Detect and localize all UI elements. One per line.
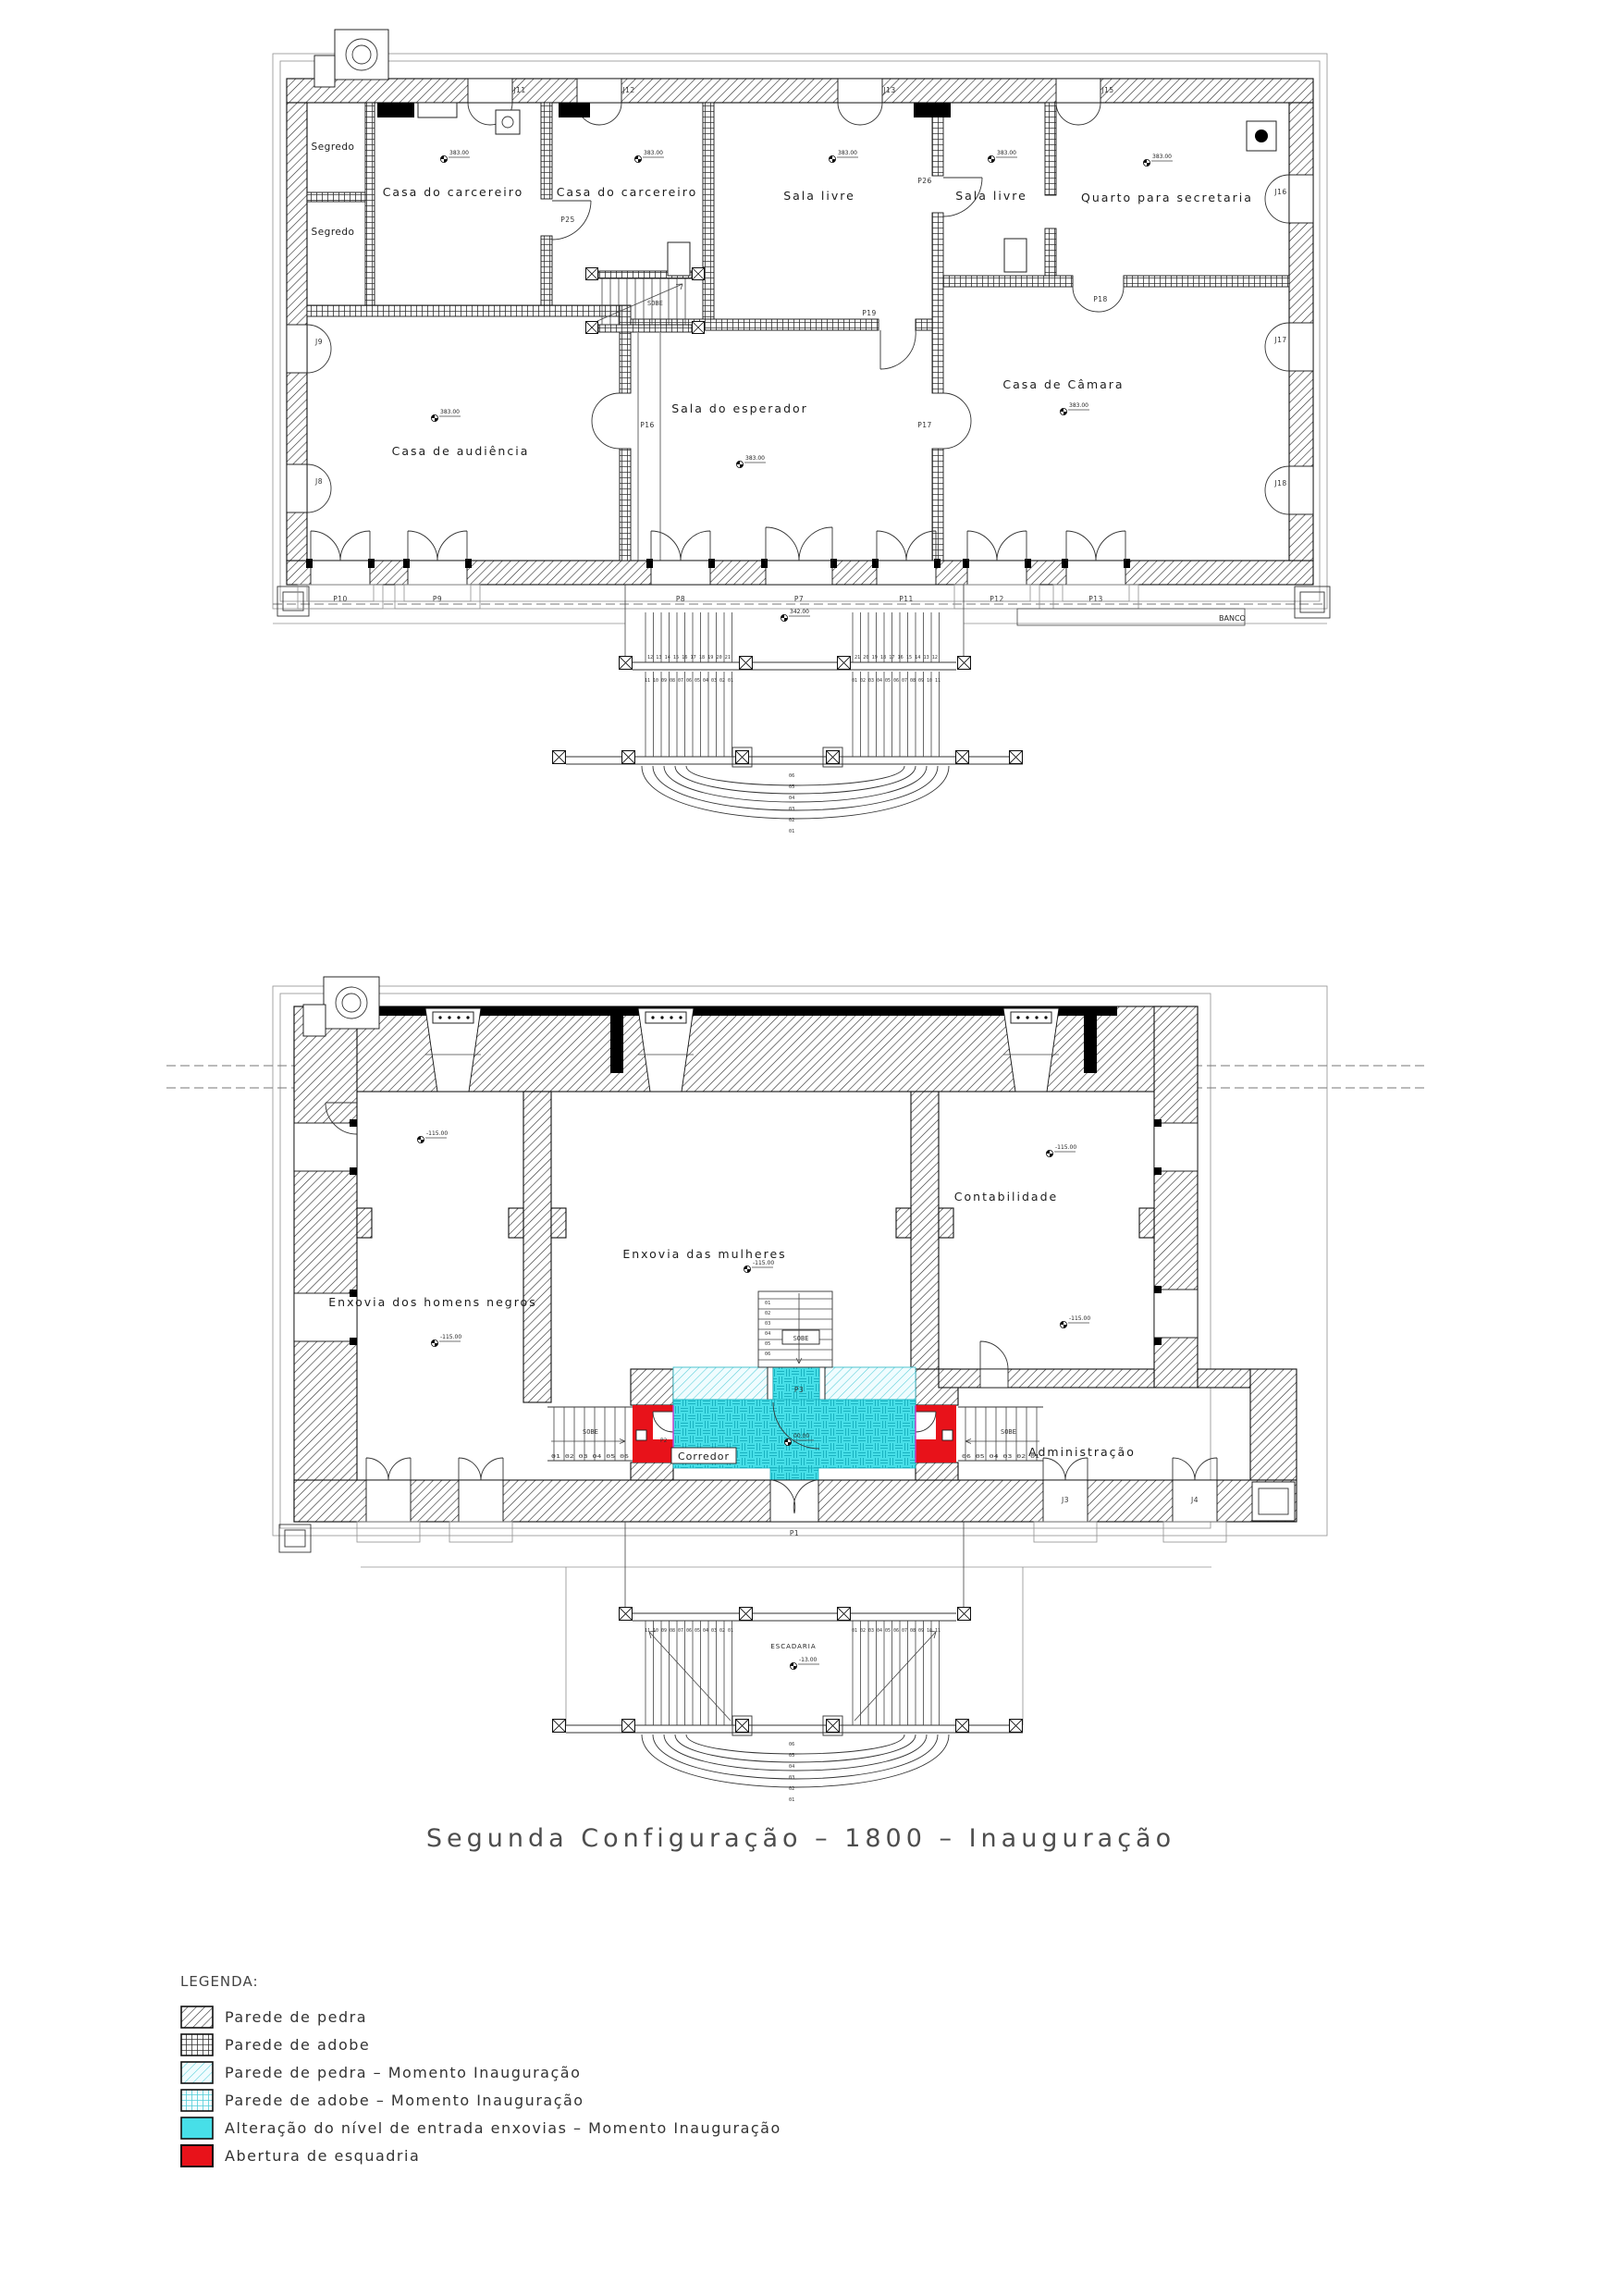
room-label-contabilidade: Contabilidade [954,1190,1058,1204]
corner-pillar-ornament [303,977,379,1036]
door-p10: P10 [306,531,375,603]
svg-text:-115.00: -115.00 [440,1334,461,1340]
banco-bench: BANCO [1017,609,1246,625]
svg-text:05: 05 [789,784,794,790]
room-label-corredor: Corredor [678,1450,730,1463]
level-markers: -115.00 -115.00 -115.00 -115.00 -115.00 [417,1130,1090,1347]
legend-heading: LEGENDA: [180,1973,781,1990]
door-p7: P7 [761,527,837,603]
door-p18: P18 [1073,287,1124,312]
svg-text:383.00: 383.00 [745,455,765,462]
window-label-j4: J4 [1190,1496,1199,1504]
internal-stair-mulheres: 01 02 03 04 05 06 SOBE [758,1291,832,1367]
legend-item-adobe: Parede de adobe [180,2031,781,2058]
svg-text:01: 01 [789,829,794,834]
svg-text:04: 04 [765,1331,770,1337]
svg-text:383.00: 383.00 [1069,402,1088,409]
svg-text:03: 03 [789,807,794,812]
drawing-sheet: J11 J12 J13 J15 J9 J8 J16 J17 J18 [0,0,1623,2296]
svg-text:03: 03 [765,1321,770,1327]
legend-label: Parede de pedra – Momento Inauguração [225,2064,581,2081]
door-p12: P12 [963,531,1031,603]
legend-label: Parede de adobe [225,2036,370,2054]
svg-text:02: 02 [789,1786,794,1792]
svg-text:01: 01 [765,1301,770,1306]
door-label-p10: P10 [333,595,348,603]
room-label-enxovia-mulheres: Enxovia das mulheres [622,1247,786,1261]
legend-swatch-solid-cyan-icon [180,2117,214,2140]
window-j17: J17 [1265,323,1313,371]
opening-red-left: P2 [633,1405,673,1463]
legend-item-nivel-entrada: Alteração do nível de entrada enxovias –… [180,2114,781,2142]
svg-text:383.00: 383.00 [644,150,663,156]
svg-text:-115.00: -115.00 [753,1260,774,1266]
interior-walls-adobe [307,103,1289,561]
door-p19: P19 [862,309,916,369]
door-p8: P8 [646,531,715,603]
svg-text:02: 02 [789,818,794,823]
door-p9: P9 [403,531,472,603]
svg-text:01 02 03 04 05 06 07 08 09 10: 01 02 03 04 05 06 07 08 09 10 11 [852,1628,941,1634]
svg-text:383.00: 383.00 [838,150,857,156]
room-label-casa-audiencia: Casa de audiência [392,444,530,458]
door-p16: P16 [592,393,655,449]
legend-swatch-adobe-grid-icon [180,2033,214,2056]
room-label-carcereiro-1: Casa do carcereiro [383,185,524,199]
door-label-p2: P2 [660,1438,668,1444]
window-label-j13: J13 [882,86,895,94]
legend-swatch-solid-red-icon [180,2144,214,2167]
door-p25: P25 [552,201,591,240]
svg-text:06: 06 [789,773,794,779]
room-label-enxovia-homens: Enxovia dos homens negros [328,1295,536,1309]
fixture-basin [496,110,520,134]
window-label-j18: J18 [1273,479,1286,488]
escadaria-terrace: 11 10 09 08 07 06 05 04 03 02 01 01 02 0… [553,1522,1023,1803]
legend-swatch-stone-cyan-icon [180,2061,214,2084]
room-label-administracao: Administração [1028,1445,1136,1459]
door-label-p1: P1 [790,1529,799,1537]
stair-label-sobe-left: SOBE [583,1428,598,1436]
svg-text:383.00: 383.00 [440,409,460,415]
room-label-segredo-2: Segredo [312,227,355,238]
corner-pad-se [1252,1482,1295,1521]
svg-text:05: 05 [789,1753,794,1759]
svg-text:03: 03 [789,1775,794,1781]
svg-text:01 02 03 04 05 06: 01 02 03 04 05 06 [551,1454,629,1460]
door-label-p11: P11 [899,595,914,603]
svg-text:00.00: 00.00 [793,1433,809,1439]
svg-text:06: 06 [789,1742,794,1747]
legend: LEGENDA: Parede de pedra Parede de adobe… [180,1973,781,2169]
floor-plan-upper: J11 J12 J13 J15 J9 J8 J16 J17 J18 [129,28,1517,842]
fixture-secretaria [1247,121,1276,151]
side-wall-windows: J9 J8 J16 J17 J18 [287,175,1313,514]
door-p13: P13 [1062,531,1130,603]
door-label-p9: P9 [433,595,442,603]
room-label-sala-esperador: Sala do esperador [671,401,808,415]
door-label-p19: P19 [862,309,877,317]
room-label-casa-camara: Casa de Câmara [1002,377,1124,391]
legend-item-abertura-esquadria: Abertura de esquadria [180,2142,781,2169]
door-label-p18: P18 [1093,295,1108,303]
legend-label: Abertura de esquadria [225,2147,420,2165]
stair-label-sobe-right: SOBE [1001,1428,1016,1436]
door-label-p3: P3 [794,1386,804,1394]
floor-plan-lower: P2 P3 Corredor 00.00 SOBE 01 02 03 04 05… [129,971,1517,1822]
door-administracao [980,1341,1008,1388]
window-j4: J4 [1163,1458,1226,1542]
svg-text:01: 01 [789,1797,794,1803]
window-j16: J16 [1265,175,1313,223]
corridor-inauguracao: P2 P3 Corredor 00.00 [633,1367,956,1480]
window-label-j16: J16 [1273,188,1286,196]
corredor-label-box: Corredor [671,1448,736,1463]
room-label-segredo-1: Segredo [312,142,355,153]
svg-text:05: 05 [765,1341,770,1347]
door-p1: P1 [770,1480,818,1537]
terrace-curved-steps: 06 05 04 03 02 01 [642,1734,949,1803]
svg-text:11 10 09 08 07 06 05 04 03 02: 11 10 09 08 07 06 05 04 03 02 01 [645,678,733,684]
door-p11: P11 [872,531,941,603]
room-label-sala-livre-2: Sala livre [955,189,1027,203]
door-label-p16: P16 [640,421,655,429]
svg-text:-115.00: -115.00 [1055,1144,1076,1151]
legend-swatch-adobe-cyan-icon [180,2089,214,2112]
door-label-p8: P8 [676,595,685,603]
banco-label: BANCO [1219,614,1246,623]
svg-text:04: 04 [789,796,794,801]
window-j3: J3 [1034,1458,1097,1542]
svg-text:06: 06 [765,1352,770,1357]
window-j8: J8 [287,464,331,512]
svg-text:-13.00: -13.00 [799,1657,818,1663]
svg-text:04: 04 [789,1764,794,1770]
sobe-stair-left: SOBE 01 02 03 04 05 06 [547,1407,633,1461]
legend-item-stone-inauguracao: Parede de pedra – Momento Inauguração [180,2058,781,2086]
door-label-p17: P17 [917,421,932,429]
legend-item-adobe-inauguracao: Parede de adobe – Momento Inauguração [180,2086,781,2114]
svg-text:01 02 03 04 05 06 07 08 09 10: 01 02 03 04 05 06 07 08 09 10 11 [852,678,941,684]
window-label-j17: J17 [1273,336,1286,344]
svg-text:342.00: 342.00 [790,609,809,615]
door-label-p26: P26 [917,177,932,185]
legend-label: Alteração do nível de entrada enxovias –… [225,2119,781,2137]
window-label-j3: J3 [1061,1496,1069,1504]
legend-label: Parede de pedra [225,2008,367,2026]
svg-text:21 20 19 18 17 16 15 14 13 12: 21 20 19 18 17 16 15 14 13 12 [855,655,938,660]
legend-swatch-stone-hatch-icon [180,2006,214,2029]
window-j9: J9 [287,325,331,373]
porches [298,585,1138,609]
room-label-sala-livre-1: Sala livre [783,189,855,203]
room-label-carcereiro-2: Casa do carcereiro [557,185,698,199]
svg-text:-115.00: -115.00 [1069,1315,1090,1322]
door-label-p7: P7 [794,595,804,603]
corner-pad-se [1295,586,1330,618]
window-label-j11: J11 [512,86,525,94]
door-label-p12: P12 [990,595,1004,603]
window-label-j15: J15 [1100,86,1113,94]
svg-text:11 10 09 08 07 06 05 04 03 02: 11 10 09 08 07 06 05 04 03 02 01 [645,1628,733,1634]
opening-red-right [916,1405,956,1463]
site-boundary [273,54,1327,623]
window-label-j9: J9 [314,338,323,346]
door-p17: P17 [917,393,971,449]
corner-pad-sw [279,1524,311,1552]
window-j18: J18 [1265,466,1313,514]
stair-label-sobe-internal: SOBE [793,1335,809,1342]
terrace-curved-steps: 06 05 04 03 02 01 [642,766,949,834]
door-label-p13: P13 [1088,595,1103,603]
svg-text:-115.00: -115.00 [426,1130,448,1137]
corner-pillar-ornament [314,30,388,87]
legend-item-stone: Parede de pedra [180,2003,781,2031]
svg-text:02: 02 [765,1311,770,1316]
svg-text:383.00: 383.00 [997,150,1016,156]
svg-text:383.00: 383.00 [449,150,469,156]
escadaria-label: ESCADARIA [770,1643,816,1650]
svg-text:12 13 14 15 16 17 18 19 20 21: 12 13 14 15 16 17 18 19 20 21 [647,655,731,660]
room-label-quarto-secretaria: Quarto para secretaria [1081,191,1253,204]
terrace-stairs: 12 13 14 15 16 17 18 19 20 21 11 10 09 0… [553,585,1023,834]
window-label-j8: J8 [314,477,323,486]
door-label-p25: P25 [560,216,575,224]
window-label-j12: J12 [621,86,634,94]
legend-label: Parede de adobe – Momento Inauguração [225,2092,584,2109]
svg-text:383.00: 383.00 [1152,154,1172,160]
sheet-title: Segunda Configuração – 1800 – Inauguraçã… [0,1824,1602,1853]
stair-label-sobe: SOBE [647,300,663,307]
